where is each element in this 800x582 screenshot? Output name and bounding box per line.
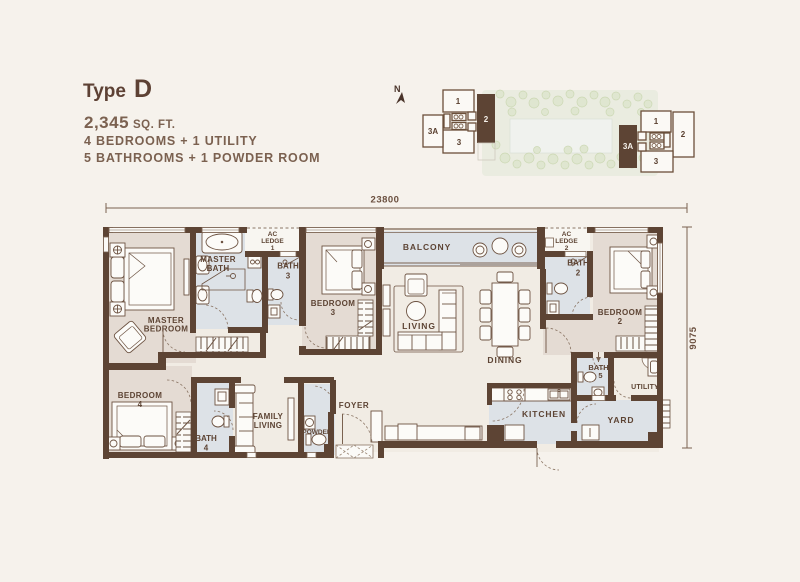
svg-text:KITCHEN: KITCHEN [522, 409, 566, 419]
svg-text:BATH: BATH [567, 259, 589, 268]
svg-text:2,345: 2,345 [84, 113, 129, 132]
svg-text:4: 4 [204, 444, 209, 453]
svg-text:BEDROOM: BEDROOM [118, 391, 163, 400]
svg-text:AC: AC [562, 231, 572, 238]
svg-text:FAMILY: FAMILY [253, 412, 284, 421]
svg-text:LIVING: LIVING [254, 421, 282, 430]
svg-text:2: 2 [681, 130, 686, 139]
svg-text:1: 1 [456, 97, 461, 106]
svg-text:2: 2 [565, 245, 569, 252]
svg-text:POWDER: POWDER [302, 429, 332, 436]
svg-text:BATH: BATH [207, 264, 230, 273]
svg-text:1: 1 [654, 117, 659, 126]
svg-text:2: 2 [484, 115, 489, 124]
svg-text:DINING: DINING [487, 355, 522, 365]
svg-text:FOYER: FOYER [339, 401, 370, 410]
svg-text:BEDROOM: BEDROOM [144, 325, 189, 334]
svg-text:23800: 23800 [371, 195, 400, 206]
svg-text:UTILITY: UTILITY [631, 384, 659, 391]
svg-text:3A: 3A [623, 142, 633, 151]
svg-text:D: D [134, 75, 152, 103]
svg-text:MASTER: MASTER [200, 255, 236, 264]
svg-text:3: 3 [654, 157, 659, 166]
svg-text:2: 2 [618, 317, 623, 326]
svg-text:YARD: YARD [608, 415, 635, 425]
svg-text:1: 1 [271, 245, 275, 252]
svg-text:Type: Type [83, 81, 126, 102]
svg-text:3: 3 [457, 138, 462, 147]
svg-text:BEDROOM: BEDROOM [311, 299, 356, 308]
svg-text:4 BEDROOMS + 1 UTILITY: 4 BEDROOMS + 1 UTILITY [84, 134, 258, 148]
svg-text:BATH: BATH [277, 262, 299, 271]
svg-text:LIVING: LIVING [402, 321, 436, 331]
svg-text:2: 2 [576, 269, 581, 278]
svg-text:BATH: BATH [195, 434, 217, 443]
svg-text:BEDROOM: BEDROOM [598, 308, 643, 317]
svg-text:SQ. FT.: SQ. FT. [133, 119, 175, 131]
svg-text:3A: 3A [428, 127, 438, 136]
svg-text:N: N [394, 84, 401, 94]
svg-text:5 BATHROOMS + 1 POWDER ROOM: 5 BATHROOMS + 1 POWDER ROOM [84, 151, 320, 165]
svg-text:3: 3 [286, 272, 291, 281]
svg-text:4: 4 [138, 400, 143, 409]
svg-text:9075: 9075 [688, 326, 699, 349]
svg-text:BALCONY: BALCONY [403, 242, 451, 252]
svg-text:3: 3 [331, 308, 336, 317]
svg-text:AC: AC [268, 231, 278, 238]
svg-text:5: 5 [598, 371, 602, 380]
